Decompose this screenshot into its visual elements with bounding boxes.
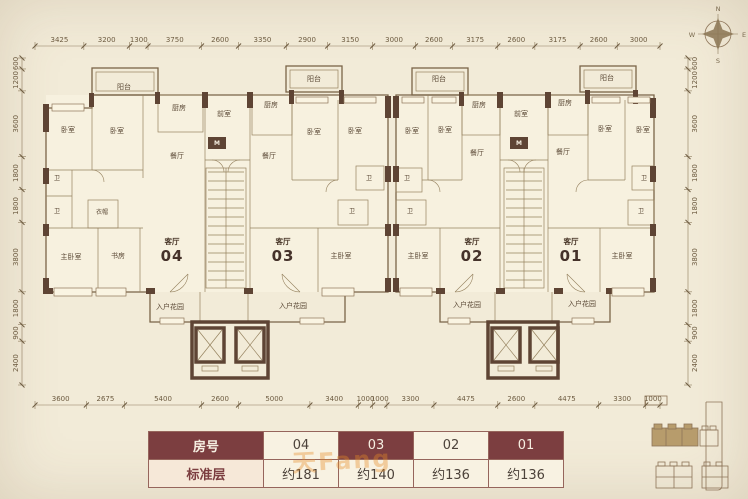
dimension-label: 2600 [425, 36, 443, 44]
compass-s: S [716, 57, 720, 65]
dimension-label: 3800 [12, 248, 20, 266]
room-label: 前室 [217, 109, 231, 118]
dimension-label: 2600 [211, 395, 229, 403]
room-label: 阳台 [307, 74, 321, 83]
dimension-label: 2600 [507, 395, 525, 403]
dimension-label: 1200 [691, 71, 699, 89]
key-plan-highlighted-building [652, 428, 698, 446]
table-cell-unit-03: 03 [339, 432, 413, 459]
room-label: 卫 [54, 208, 60, 215]
room-label: 阳台 [432, 74, 446, 83]
dimension-label: 3200 [98, 36, 116, 44]
elevators-right [488, 322, 558, 378]
dimension-label: 1800 [12, 164, 20, 182]
dimension-label: 1800 [12, 197, 20, 215]
room-label: 书房 [111, 251, 125, 260]
table-cell-area-03: 约140 [339, 460, 413, 487]
room-label: 入户花园 [156, 302, 184, 311]
table-cell-unit-02: 02 [414, 432, 488, 459]
dimension-label: 3175 [466, 36, 484, 44]
table-header-room-no: 房号 [149, 432, 263, 459]
dimension-label: 2400 [12, 354, 20, 372]
room-label: 卫 [404, 175, 410, 182]
unit-number: 02 [461, 247, 484, 265]
room-label: 厨房 [264, 100, 278, 109]
floorplan-page: N E S W 34253200130037502600335029003150… [0, 0, 748, 499]
room-label: 厨房 [558, 98, 572, 107]
dimension-label: 5000 [265, 395, 283, 403]
room-label: 卧室 [438, 125, 452, 134]
unit-info-table: 房号 04 03 02 01 标准层 约181 约140 约136 约136 [148, 431, 564, 488]
table-cell-area-01: 约136 [489, 460, 563, 487]
room-label: 衣帽 [96, 208, 108, 216]
compass: N E S W [689, 5, 746, 65]
dimension-label: 4475 [457, 395, 475, 403]
dimension-label: 2675 [97, 395, 115, 403]
room-label: 阳台 [600, 73, 614, 82]
dimension-label: 3600 [691, 115, 699, 133]
room-label: 入户花园 [568, 299, 596, 308]
dimension-label: 5400 [154, 395, 172, 403]
compass-n: N [716, 5, 721, 13]
room-label: M [516, 140, 522, 147]
right-building-fill [396, 95, 654, 292]
dimension-label: 3175 [549, 36, 567, 44]
room-label: 主卧室 [331, 251, 352, 260]
room-label: 餐厅 [262, 151, 276, 160]
dimension-row-bottom: 3600267554002600500034001000100033004475… [33, 395, 663, 409]
dimension-label: 2600 [590, 36, 608, 44]
dimension-label: 3800 [691, 248, 699, 266]
room-label: 卧室 [307, 127, 321, 136]
dimension-label: 900 [691, 326, 699, 339]
unit-living-label: 客厅 [164, 236, 180, 246]
room-label: 卫 [366, 175, 372, 182]
dimension-label: 3300 [402, 395, 420, 403]
room-label: 卫 [641, 175, 647, 182]
unit-living-label: 客厅 [563, 236, 579, 246]
room-label: 厨房 [472, 100, 486, 109]
room-label: 卧室 [636, 125, 650, 134]
room-label: 餐厅 [556, 147, 570, 156]
room-label: 卧室 [405, 126, 419, 135]
dimension-label: 3000 [630, 36, 648, 44]
dimension-label: 3000 [385, 36, 403, 44]
compass-star [702, 18, 734, 50]
table-cell-area-04: 约181 [264, 460, 338, 487]
dimension-label: 1300 [130, 36, 148, 44]
room-label: 卧室 [110, 126, 124, 135]
dimension-label: 3750 [166, 36, 184, 44]
dimension-label: 2900 [298, 36, 316, 44]
room-label: 厨房 [172, 103, 186, 112]
dimension-label: 1000 [371, 395, 389, 403]
room-label: 入户花园 [453, 300, 481, 309]
dimension-label: 3400 [325, 395, 343, 403]
dimension-label: 4475 [558, 395, 576, 403]
dimension-label: 600 [12, 57, 20, 70]
room-label: 阳台 [117, 82, 131, 91]
left-building-fill [46, 95, 388, 292]
dimension-label: 2400 [691, 354, 699, 372]
compass-w: W [689, 31, 696, 39]
floorplan-drawing: N E S W 34253200130037502600335029003150… [0, 0, 748, 499]
table-cell-unit-01: 01 [489, 432, 563, 459]
room-label: 主卧室 [408, 251, 429, 260]
room-label: 卫 [407, 208, 413, 215]
dimension-label: 1800 [691, 299, 699, 317]
table-header-std-floor: 标准层 [149, 460, 263, 487]
room-label: 主卧室 [61, 252, 82, 261]
unit-number: 01 [560, 247, 583, 265]
dimension-label: 900 [12, 326, 20, 339]
unit-number: 03 [272, 247, 295, 265]
unit-number: 04 [161, 247, 184, 265]
room-label: 餐厅 [470, 148, 484, 157]
dimension-column-left: 6001200360018001800380018009002400 [12, 56, 26, 388]
unit-living-label: 客厅 [464, 236, 480, 246]
dimension-label: 3600 [12, 115, 20, 133]
compass-e: E [742, 31, 746, 39]
dimension-label: 1800 [691, 164, 699, 182]
table-cell-area-02: 约136 [414, 460, 488, 487]
dimension-label: 3425 [51, 36, 69, 44]
dimension-label: 2600 [507, 36, 525, 44]
dimension-label: 3150 [341, 36, 359, 44]
dimension-label: 2600 [211, 36, 229, 44]
room-label: 卫 [54, 175, 60, 182]
room-label: 卫 [638, 208, 644, 215]
table-cell-unit-04: 04 [264, 432, 338, 459]
dimension-label: 1200 [12, 71, 20, 89]
room-label: 入户花园 [279, 301, 307, 310]
room-label: 前室 [514, 109, 528, 118]
dimension-column-right: 6001200360018001800380018009002400 [684, 56, 699, 388]
room-label: 主卧室 [612, 251, 633, 260]
dimension-label: 600 [691, 57, 699, 70]
dimension-label: 1800 [691, 197, 699, 215]
dimension-label: 1000 [644, 395, 662, 403]
room-label: M [214, 140, 220, 147]
dimension-label: 3600 [52, 395, 70, 403]
room-label: 餐厅 [170, 151, 184, 160]
key-plan [645, 396, 728, 490]
room-label: 卧室 [598, 124, 612, 133]
unit-living-label: 客厅 [275, 236, 291, 246]
room-label: 卫 [349, 208, 355, 215]
elevators-left [192, 322, 268, 378]
room-label: 卧室 [61, 125, 75, 134]
dimension-label: 3350 [254, 36, 272, 44]
room-label: 卧室 [348, 126, 362, 135]
dimension-label: 3300 [613, 395, 631, 403]
dimension-label: 1800 [12, 299, 20, 317]
dimension-row-top: 3425320013003750260033502900315030002600… [33, 36, 663, 50]
